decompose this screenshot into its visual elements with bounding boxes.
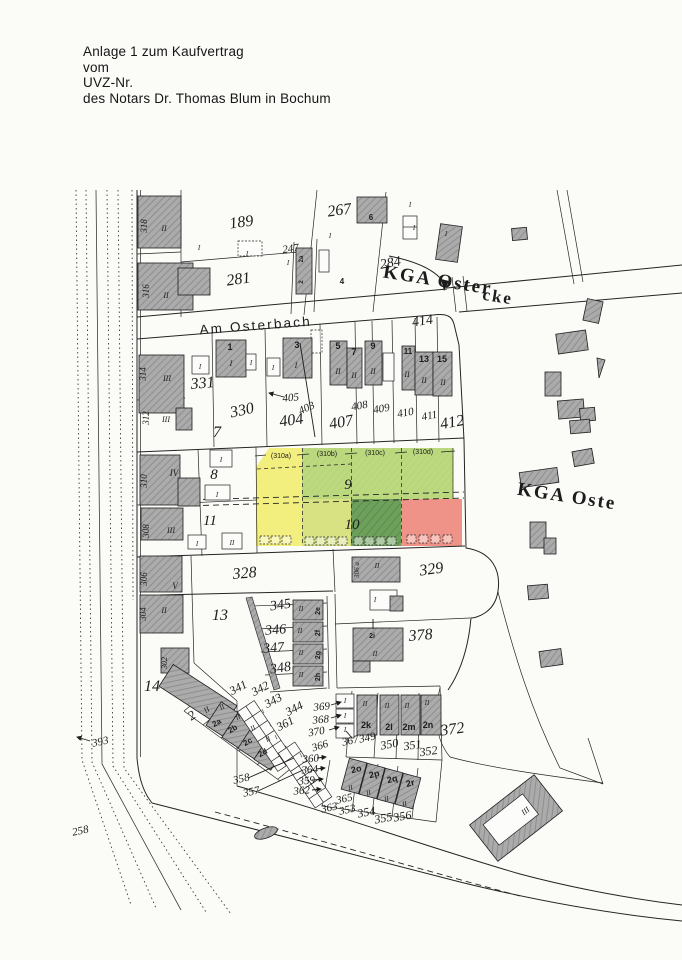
map-label-ii: II	[384, 702, 390, 710]
map-label-306: 306	[139, 572, 149, 587]
map-label-302: 302	[160, 657, 169, 670]
map-label-ii: II	[298, 605, 304, 613]
map-label-372: 372	[438, 719, 465, 739]
map-label-iii: III	[161, 415, 170, 424]
map-label-310: 310	[139, 474, 149, 489]
map-label-2k: 2k	[361, 720, 372, 730]
map-label-357: 357	[241, 784, 261, 799]
map-label-410: 410	[396, 406, 415, 421]
bottom-road-upper-edge	[237, 786, 682, 905]
map-label-i: I	[328, 232, 332, 240]
map-label-7: 7	[213, 424, 222, 441]
street-label-am-osterbach: Am Osterbach	[199, 314, 313, 338]
map-label-9: 9	[370, 341, 375, 351]
map-label-10: 10	[345, 517, 361, 533]
map-label-405: 405	[282, 391, 300, 404]
map-label-352: 352	[418, 743, 439, 760]
map-label-347: 347	[262, 640, 286, 657]
map-label-i: I	[294, 361, 298, 370]
map-label-ii: II	[298, 671, 304, 679]
map-label-1: 1	[227, 342, 232, 352]
map-label-2e: 2e	[315, 607, 322, 615]
map-label-ii: II	[372, 650, 378, 658]
scanned-document-page: Anlage 1 zum Kaufvertrag vom UVZ-Nr. des…	[0, 0, 682, 960]
map-label-i: I	[197, 244, 201, 252]
map-label-ii: II	[404, 702, 410, 710]
kga-label-right: KGA Oste	[516, 479, 618, 515]
map-label-363: 363	[319, 800, 339, 815]
map-label-411: 411	[421, 409, 439, 424]
map-label-2h: 2h	[315, 673, 322, 681]
map-label-i: I	[286, 259, 290, 267]
map-label-13: 13	[419, 354, 429, 364]
map-label-355: 355	[372, 810, 393, 827]
map-label-358: 358	[231, 771, 251, 786]
map-label-14: 14	[144, 678, 160, 695]
map-label-ii: II	[403, 370, 410, 379]
map-label-ii: II	[334, 367, 341, 376]
map-label-281: 281	[225, 269, 251, 289]
map-label-312: 312	[141, 411, 151, 426]
map-label-2n: 2n	[423, 720, 434, 730]
kga-label-top-cont: cke	[481, 285, 514, 309]
map-label-331: 331	[189, 374, 215, 393]
map-label-ii: II	[160, 606, 167, 615]
map-label-349: 349	[357, 730, 377, 745]
map-label-341: 341	[226, 677, 249, 698]
cadastral-map: Am Osterbach KGA Oster cke KGA Oste 318I…	[0, 0, 682, 960]
map-label-ii: II	[439, 378, 446, 387]
map-label-ii: II	[160, 224, 167, 233]
bottom-road-lower-edge	[152, 803, 682, 921]
map-label-258: 258	[71, 823, 90, 838]
map-label-306-a: 306 a	[353, 562, 361, 579]
map-label-316: 316	[141, 284, 151, 299]
map-label-2f: 2f	[315, 629, 322, 636]
map-label-378: 378	[407, 626, 433, 645]
map-label-362: 362	[292, 784, 311, 798]
map-label-247: 247	[282, 242, 301, 256]
map-label-408: 408	[350, 399, 369, 414]
map-label-ii: II	[229, 539, 235, 547]
map-label-9: 9	[344, 477, 352, 493]
map-label-2g: 2g	[315, 651, 322, 659]
map-label-11: 11	[404, 347, 413, 356]
map-label-4: 4	[340, 277, 345, 286]
map-label-403: 403	[297, 399, 317, 417]
map-label-414: 414	[411, 313, 434, 331]
map-label-370: 370	[306, 725, 326, 740]
map-label-407: 407	[328, 412, 356, 433]
map-label-ii: II	[297, 627, 303, 635]
map-label-2m: 2m	[402, 722, 415, 732]
map-label-353: 353	[337, 802, 357, 817]
map-label-ii: II	[350, 371, 357, 380]
map-label-346: 346	[264, 622, 287, 639]
map-label-329: 329	[417, 559, 444, 579]
map-label-310a: (310a)	[271, 453, 291, 460]
map-label-i: I	[229, 359, 233, 368]
map-label-ii: II	[369, 367, 376, 376]
map-label-189: 189	[228, 212, 254, 232]
map-label-308: 308	[141, 524, 151, 539]
map-label-314: 314	[138, 367, 148, 382]
map-label-267: 267	[326, 200, 353, 220]
map-label-318: 318	[139, 219, 149, 234]
map-label-330: 330	[228, 400, 256, 422]
map-label-348: 348	[268, 660, 292, 678]
map-label-369: 369	[312, 700, 331, 714]
map-label-11: 11	[203, 513, 217, 529]
map-label-2i: 2i	[369, 633, 375, 640]
map-label-ii: II	[420, 376, 427, 385]
map-label-412: 412	[439, 412, 466, 433]
map-label-409: 409	[372, 402, 391, 417]
map-label-ii: II	[424, 699, 430, 707]
map-label-ii: II	[374, 562, 380, 570]
map-label-7: 7	[351, 347, 356, 357]
map-label-3: 3	[294, 340, 299, 350]
map-label-15: 15	[437, 354, 447, 364]
map-label-310d: (310d)	[413, 449, 433, 456]
map-label-2a: 2a	[299, 255, 305, 262]
map-label-ii: II	[162, 291, 169, 300]
map-label-iii: III	[162, 374, 171, 383]
map-label-345: 345	[268, 597, 292, 615]
map-label-ii: II	[362, 700, 368, 708]
map-label-356: 356	[391, 808, 412, 825]
map-label-393: 393	[90, 734, 110, 749]
map-label-310c: (310c)	[365, 450, 385, 457]
map-label-304: 304	[138, 607, 148, 622]
map-label-2l: 2l	[385, 722, 393, 732]
map-label-310b: (310b)	[317, 451, 337, 458]
map-label-5: 5	[335, 341, 340, 351]
map-label-iii: III	[166, 526, 175, 535]
map-label-13: 13	[212, 607, 228, 624]
map-label-iv: IV	[169, 468, 180, 478]
map-label-i: I	[408, 201, 412, 209]
map-label-6: 6	[369, 213, 374, 222]
map-label-328: 328	[231, 564, 257, 583]
map-label-367: 367	[340, 733, 360, 748]
map-label-ii: II	[298, 649, 304, 657]
map-label-8: 8	[210, 467, 218, 483]
